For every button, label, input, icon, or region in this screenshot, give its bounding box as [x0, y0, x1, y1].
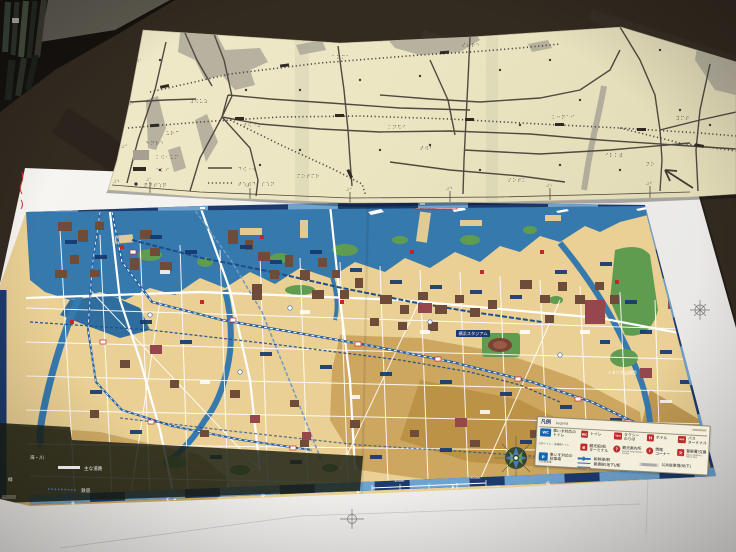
sightseeing-boat-icon: 船 [580, 443, 587, 450]
hotel-label: ホテル [656, 436, 676, 441]
photo-of-two-maps-on-desk: 横浜港大さん橋 国際客船ターミナル 横浜スタジアム イタリア山庭園 [0, 0, 736, 552]
police-icon: 交 [677, 449, 684, 456]
wheelchair-toilet-sub: 公共トイレ・多機能トイレ [538, 443, 578, 448]
hotel-icon: H [647, 434, 654, 441]
legend-title: 凡例 [540, 418, 551, 426]
legend-title-en: Legend [556, 421, 569, 426]
wheelchair-toilet-icon: WC [540, 428, 551, 437]
local-line-label: 普通線(地下)/駅 [593, 462, 625, 468]
bus-terminal-icon: BUS [678, 436, 686, 443]
tourist-information-sub: Tourist Information Center [622, 451, 646, 457]
shinkansen-line-swatch [578, 457, 591, 460]
sightseeing-boat-label: 観光船/船 ターミナル [589, 444, 611, 453]
taxi-icon: TAXI [614, 432, 622, 439]
information-corner-icon: i [646, 447, 653, 454]
tourist-information-icon: ? [613, 445, 620, 452]
map-legend-panel: 凡例 Legend WC 車いす対応の トイレ 公共トイレ・多機能トイレ WC … [534, 416, 711, 476]
toilet-label: トイレ [590, 432, 612, 437]
bus-terminal-label: バス ターミナル [688, 436, 708, 445]
underground-parking-label: 公共駐車場(地下) [661, 463, 703, 469]
wheelchair-toilet-label: 車いす対応の トイレ [553, 429, 579, 439]
underground-parking-swatch [639, 462, 658, 466]
taxi-stand-label: タクシー のりば [624, 433, 646, 442]
legend-corner-smudge [692, 429, 706, 432]
local-line-swatch [577, 462, 590, 468]
information-corner-label: 情報 コーナー [655, 448, 675, 457]
police-sub: Police Station / Police Box [686, 454, 708, 460]
toilet-icon: WC [581, 430, 588, 437]
wheelchair-parking-label: 車いす対応の 駐車場 [550, 453, 576, 463]
wheelchair-parking-sub: 公共駐車場 [538, 461, 568, 466]
